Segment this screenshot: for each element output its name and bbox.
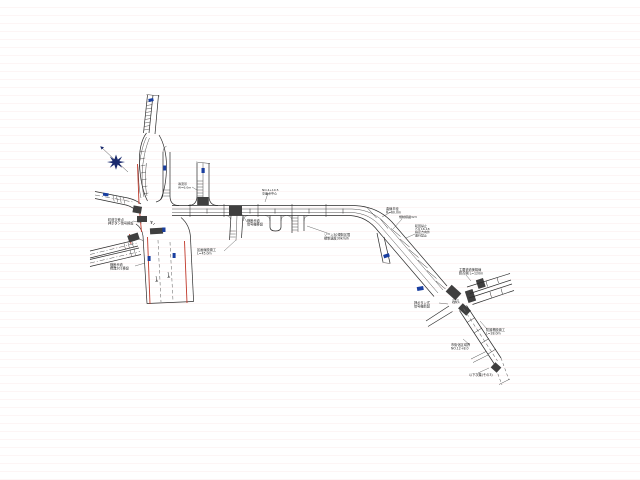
annotation-text: 進行禁止 xyxy=(415,232,427,237)
main-road-crosswalk xyxy=(229,206,242,216)
southwest-leg xyxy=(426,306,453,327)
sign-marker xyxy=(202,168,205,173)
annotation-leader xyxy=(192,187,197,190)
annotation-text: 信号機新設 xyxy=(414,303,431,308)
annotations: 町道交差点押ボタン信号移設横断歩道標識201移設導流帯W=6.0m横断歩道信号機… xyxy=(108,181,506,377)
plan-drawing: 町道交差点押ボタン信号移設横断歩道標識201移設導流帯W=6.0m横断歩道信号機… xyxy=(0,0,640,480)
annotation-text: R=60.0m xyxy=(386,210,401,214)
annotation-leader xyxy=(224,240,236,251)
annotation-text: 終点側 L=120m xyxy=(459,270,483,275)
sign-marker xyxy=(148,98,154,102)
crosswalk-nw xyxy=(446,285,462,300)
south-stub-3 xyxy=(287,216,309,234)
annotation-text: L=28.0m xyxy=(486,331,501,335)
annotation-text: 規制速度30km/h xyxy=(324,235,349,240)
north-arrow-icon xyxy=(100,146,128,172)
annotation-text: 標識201移設 xyxy=(110,265,130,270)
annotation-leader xyxy=(406,234,415,238)
sign-marker xyxy=(163,166,166,171)
south-stub-2 xyxy=(265,216,286,232)
annotation-text: 以下次葉(その3) xyxy=(469,372,493,377)
annotation-leader xyxy=(439,303,448,304)
annotation-leader xyxy=(135,263,145,266)
vertical-road-1 xyxy=(156,146,179,206)
left-junction xyxy=(90,95,218,305)
sign-marker xyxy=(103,193,109,197)
junction-center-marks xyxy=(150,221,155,225)
annotation-text: W=6.0m xyxy=(178,185,191,189)
annotation-text: L=45.0m xyxy=(197,251,212,255)
sign-marker xyxy=(162,228,165,233)
annotation-text: KBM.4 xyxy=(452,302,460,305)
annotation-text: 交差点中心 xyxy=(262,190,277,195)
south-stub-1 xyxy=(226,216,248,241)
annotation-leader xyxy=(393,219,402,229)
annotation-text: 規制標識323 xyxy=(399,214,417,219)
annotation-text: NO.12+8.0 xyxy=(451,346,469,350)
teardrop-loop xyxy=(139,133,166,201)
sign-marker xyxy=(417,286,424,291)
drawing-sheet: 町道交差点押ボタン信号移設横断歩道標識201移設導流帯W=6.0m横断歩道信号機… xyxy=(0,0,640,480)
annotation-leader xyxy=(466,275,471,281)
sign-marker xyxy=(173,253,176,258)
sign-marker xyxy=(148,256,151,261)
annotation-text: 押ボタン信号移設 xyxy=(108,220,134,225)
annotation-text: 信号機移設 xyxy=(247,221,264,226)
